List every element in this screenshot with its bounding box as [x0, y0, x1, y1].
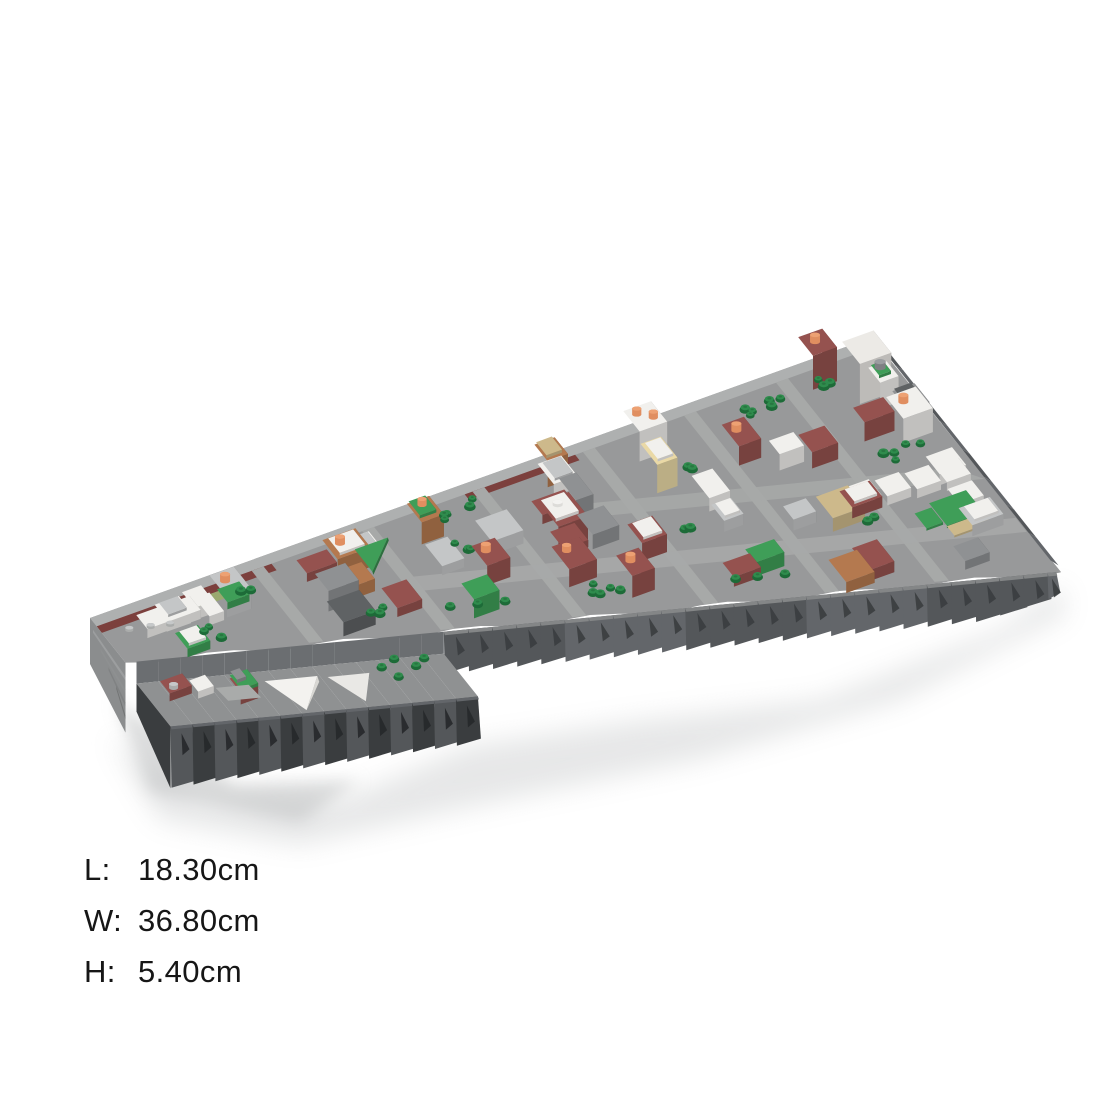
dimensions-list: L: 18.30cm W: 36.80cm H: 5.40cm: [84, 854, 260, 1007]
dimension-row-length: L: 18.30cm: [84, 854, 260, 885]
dimension-row-height: H: 5.40cm: [84, 956, 260, 987]
dimension-value: 36.80cm: [138, 905, 260, 936]
dimension-value: 5.40cm: [138, 956, 242, 987]
dimension-label: L:: [84, 854, 138, 885]
dimension-value: 18.30cm: [138, 854, 260, 885]
dimension-label: H:: [84, 956, 138, 987]
dimension-label: W:: [84, 905, 138, 936]
dimension-row-width: W: 36.80cm: [84, 905, 260, 936]
